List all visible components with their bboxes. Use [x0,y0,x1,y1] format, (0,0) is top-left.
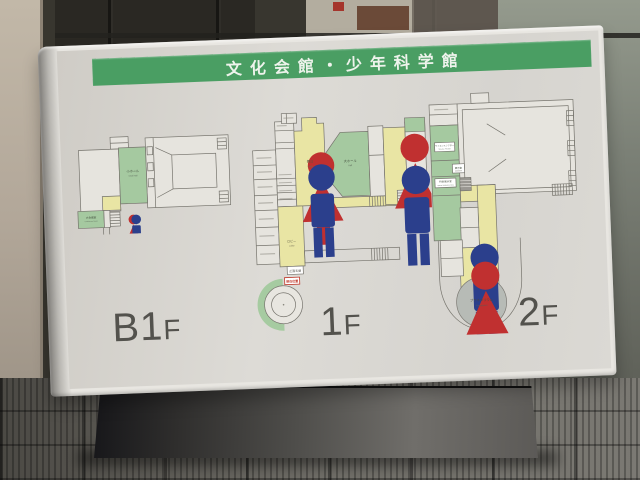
label-you-are-here: 現在位置 [286,278,298,283]
you-are-here-marker: 現在位置 [285,277,300,285]
f1-backstage-corridor [275,121,297,207]
floor-label-b1f: B1F [112,304,183,352]
label-small-hall-en: Small Hall [128,175,138,177]
small-red-sign [333,2,344,11]
floor-label-b1f-suffix: F [163,314,182,346]
floor-label-2f: 2F [517,289,560,336]
label-hall: 大ホール [344,158,358,164]
label-lobby: ロビー [287,238,296,243]
label-entrance: 正面玄関 [289,268,301,273]
label-science-theater-en: Science Theater [439,147,452,150]
f1-office-rooms [253,150,280,265]
stairs-icon [460,177,471,190]
brown-structure [357,6,409,30]
label-planetarium-en: Planetarium [476,304,488,307]
label-stage: 舞台 [307,158,315,163]
floor-label-1f-suffix: F [343,309,362,341]
label-lobby-en: Lobby [289,245,295,247]
left-wall [0,0,43,395]
b1f-corridor [102,196,121,211]
photo-of-floor-guide-sign: 文化会館・少年科学館 [0,0,640,480]
floor-label-2f-number: 2 [517,290,542,335]
label-special-exhibition: 特別展示室 [439,179,452,183]
floor-label-1f: 1F [319,299,362,346]
label-stage-en: Stage [307,165,314,168]
label-small-hall: 小ホール [126,168,140,174]
sign-base [94,386,538,458]
stairs-icon [110,212,121,226]
restroom-man-icon [401,165,433,266]
floor-label-1f-number: 1 [319,299,344,344]
label-hall-en: Hall [348,165,352,167]
f2-hall-upper [457,99,576,194]
label-conference: 大会議室 [86,215,97,219]
room-lobby [278,206,305,267]
floor-label-2f-suffix: F [541,299,560,331]
restroom-man-icon [131,214,142,236]
label-planetarium: プラネタリウム [470,297,494,303]
label-exhibition: 展示室 [455,166,463,170]
sign-board: 文化会館・少年科学館 [37,25,616,396]
floor-plan-b1f: 小ホール Small Hall 大会議室 Conference Room [55,119,239,236]
floor-label-b1f-number: B1 [112,304,165,350]
